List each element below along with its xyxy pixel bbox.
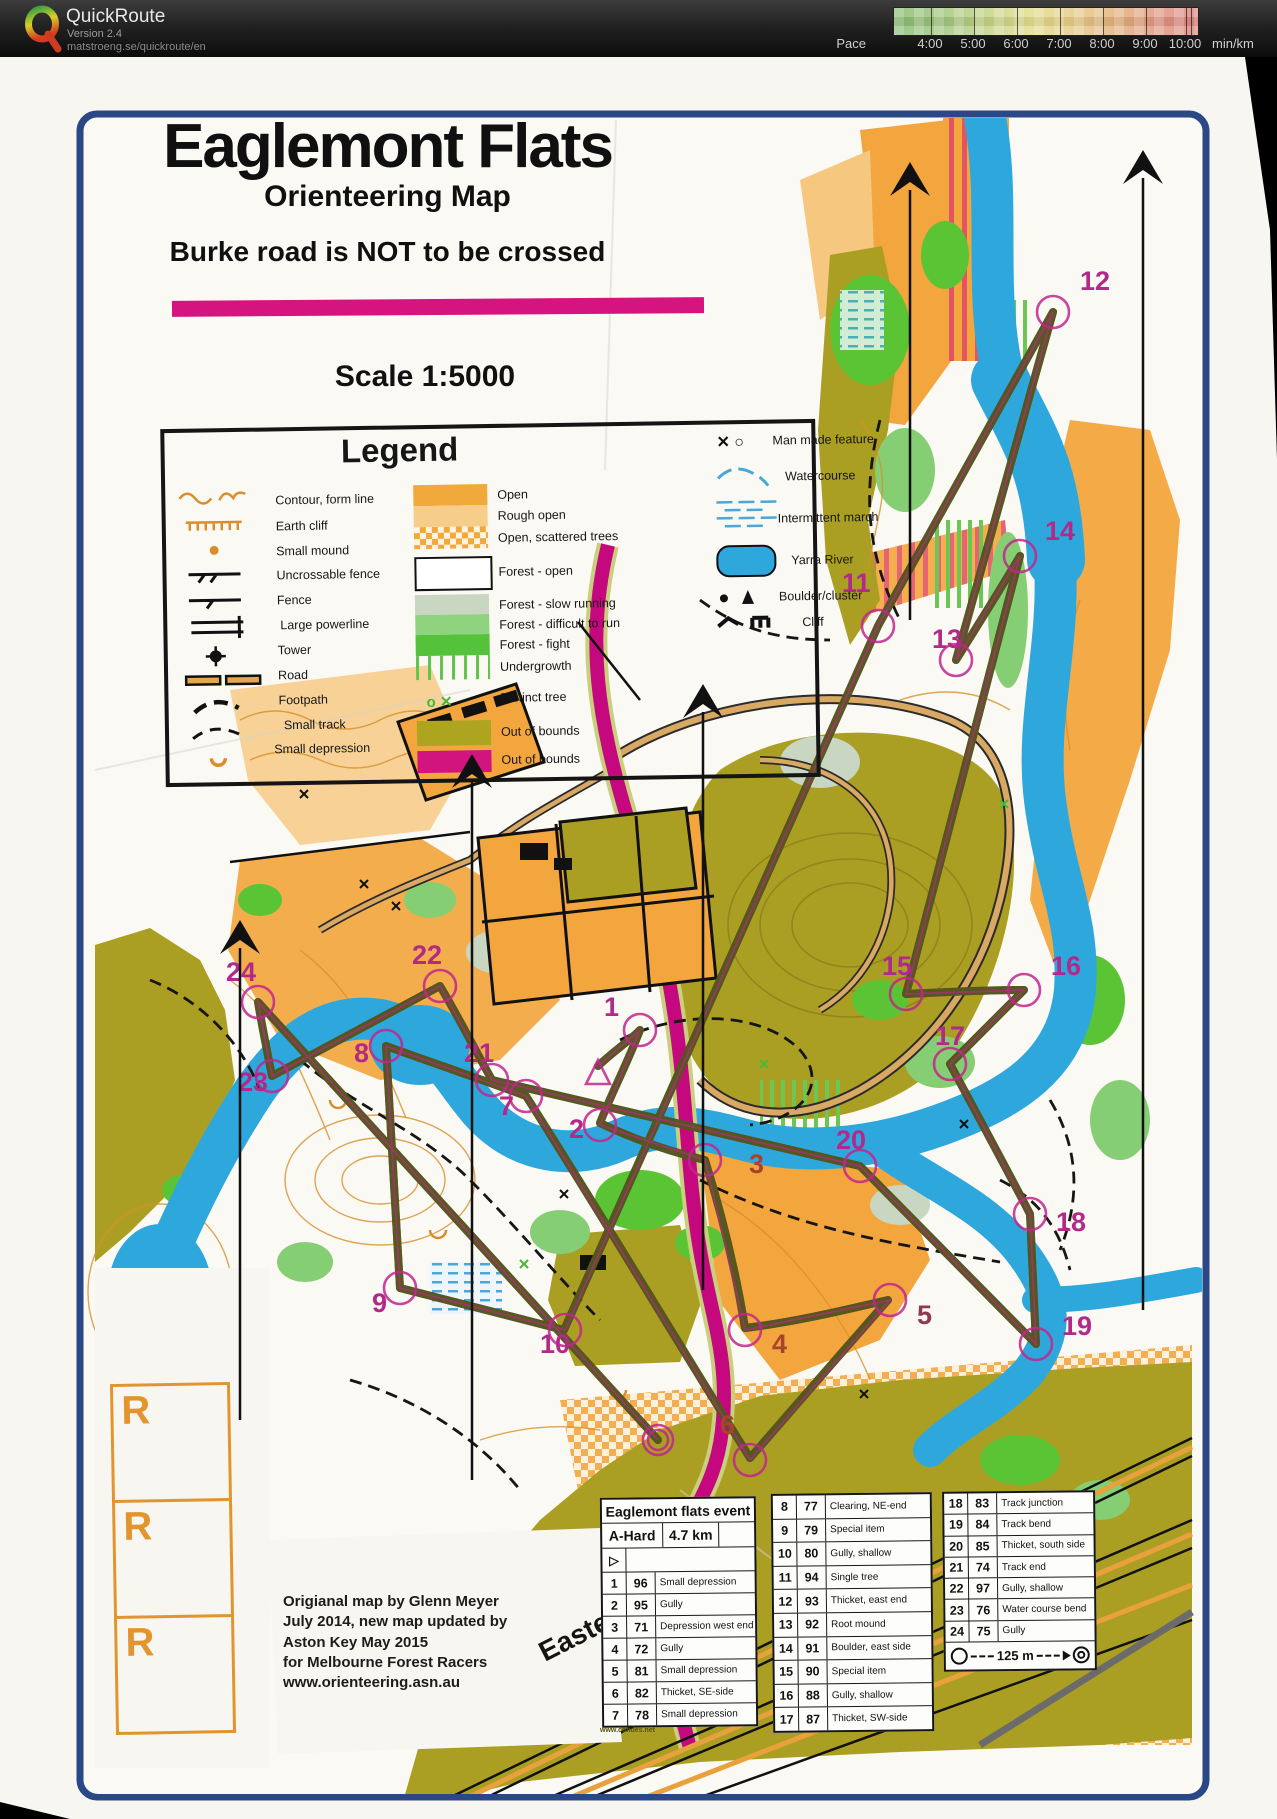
legend-item: Cliff	[802, 615, 824, 629]
legend-item: Out of bounds	[501, 724, 580, 739]
man-made-feature-icon: ✕ ○	[716, 432, 744, 452]
legend-item: Tower	[278, 643, 312, 658]
control-row: 1392Root mound	[774, 1611, 931, 1636]
scale-start-circle	[951, 1648, 968, 1665]
control-row: 581Small depression	[603, 1658, 755, 1682]
control-row: 1688Gully, shallow	[775, 1682, 932, 1707]
pace-tick-label: 8:00	[1080, 36, 1124, 51]
legend-item: Out of bounds	[501, 752, 580, 767]
legend-item: Uncrossable fence	[276, 567, 380, 583]
control-row: 371Depression west end	[603, 1614, 755, 1638]
control-number: 1	[604, 992, 619, 1022]
registration-letter: R	[121, 1388, 151, 1433]
pace-label: Pace	[790, 36, 866, 51]
start-symbol: ▷	[602, 1549, 626, 1572]
map-warning: Burke road is NOT to be crossed	[100, 236, 675, 268]
fence-icon	[189, 600, 241, 609]
pace-tick-label: 9:00	[1123, 36, 1167, 51]
legend-item: Distinct tree	[500, 690, 566, 705]
out-of-bounds-magenta-swatch	[417, 750, 491, 773]
legend-item: Road	[278, 668, 308, 682]
control-number: 21	[464, 1038, 494, 1068]
map-title-block: Eaglemont Flats Orienteering Map Burke r…	[100, 116, 675, 268]
boulder-cluster-icon	[720, 590, 754, 605]
control-descriptions-panel-2: 877Clearing, NE-end 979Special item 1080…	[771, 1492, 934, 1733]
app-title: QuickRoute	[66, 6, 165, 28]
scale-bar-row: 125 m	[946, 1640, 1095, 1670]
scattered-trees-swatch	[414, 526, 488, 549]
control-row: 196Small depression	[603, 1570, 755, 1594]
control-number: 15	[882, 951, 912, 981]
legend-item: Contour, form line	[275, 492, 374, 508]
quickroute-logo-icon	[22, 5, 68, 53]
control-number: 13	[932, 624, 962, 654]
legend-item: Watercourse	[785, 468, 856, 483]
watercourse-icon	[718, 468, 768, 486]
control-row: 1080Gully, shallow	[773, 1540, 930, 1565]
control-number: 23	[238, 1067, 268, 1097]
registration-box: R	[110, 1382, 232, 1503]
contour-icon	[179, 493, 245, 504]
control-number: 5	[917, 1300, 932, 1330]
control-number: 2	[569, 1114, 584, 1144]
control-descriptions-panel-3: 1883Track junction 1984Track bend 2085Th…	[942, 1490, 1097, 1672]
control-number: 4	[772, 1329, 787, 1359]
forest-open-swatch	[414, 556, 493, 591]
control-row: 1984Track bend	[944, 1513, 1093, 1536]
registration-letter: R	[125, 1620, 155, 1665]
control-number: 3	[749, 1149, 764, 1179]
registration-box: R	[112, 1501, 234, 1619]
control-row: 2376Water course bend	[945, 1598, 1094, 1621]
control-number: 10	[540, 1329, 570, 1359]
legend-item: Fence	[277, 593, 312, 608]
app-url: matstroeng.se/quickroute/en	[67, 41, 206, 53]
map-subtitle: Orienteering Map	[100, 180, 675, 214]
credit-line: Aston Key May 2015	[283, 1633, 507, 1653]
out-of-bounds-olive-swatch	[417, 720, 491, 746]
yarra-river-swatch	[717, 546, 775, 577]
credit-line: Origianal map by Glenn Meyer	[283, 1592, 507, 1612]
legend-item: Forest - open	[498, 564, 573, 579]
pace-tick-label: 4:00	[908, 36, 952, 51]
control-row: 1194Single tree	[774, 1564, 931, 1589]
credit-line: for Melbourne Forest Racers	[283, 1653, 507, 1673]
intermittent-marsh-icon	[716, 501, 776, 526]
undergrowth-swatch	[416, 655, 490, 680]
scale-finish-circle	[1073, 1646, 1090, 1663]
control-number: 20	[836, 1125, 866, 1155]
control-row: 979Special item	[773, 1517, 930, 1542]
control-row: 2475Gully	[945, 1619, 1094, 1642]
legend-item: Forest - fight	[500, 637, 570, 652]
small-mound-icon	[210, 546, 219, 555]
control-descriptions-panel-1: Eaglemont flats event A-Hard 4.7 km ▷ 19…	[600, 1496, 758, 1728]
legend-item: Large powerline	[280, 617, 369, 632]
control-row: 2297Gully, shallow	[945, 1576, 1094, 1599]
legend-item: Yarra River	[791, 552, 853, 567]
control-number: 9	[372, 1288, 387, 1318]
legend-item: Undergrowth	[500, 659, 572, 674]
rough-open-swatch	[413, 505, 487, 527]
control-number: 19	[1062, 1311, 1092, 1341]
control-number: 22	[412, 940, 442, 970]
small-depression-icon	[211, 758, 225, 765]
scale-arrow-icon	[1063, 1650, 1071, 1660]
road-icon	[186, 676, 260, 685]
cliff-icon	[718, 618, 768, 629]
control-row: 295Gully	[603, 1592, 755, 1616]
open-swatch	[413, 484, 487, 506]
registration-box: R	[114, 1617, 236, 1735]
control-row: 1293Thicket, east end	[774, 1588, 931, 1613]
control-number: 18	[1056, 1207, 1086, 1237]
forest-difficult-swatch	[415, 614, 489, 635]
app-version: Version 2.4	[67, 28, 122, 40]
legend-item: Earth cliff	[276, 519, 328, 534]
pace-unit: min/km	[1212, 36, 1254, 51]
legend-item: Small mound	[276, 543, 349, 558]
control-row: 1590Special item	[774, 1658, 931, 1683]
control-number: 16	[1051, 951, 1081, 981]
small-track-icon	[193, 729, 239, 739]
earth-cliff-icon	[186, 522, 242, 531]
powerline-icon	[191, 616, 243, 639]
control-number: 7	[499, 1091, 514, 1121]
control-number: 14	[1045, 516, 1075, 546]
event-name: Eaglemont flats event	[602, 1498, 754, 1523]
registration-boxes: R R R	[110, 1382, 236, 1735]
legend-item: Man made feature	[772, 432, 874, 448]
legend-box: Legend Contour, form line Earth cliff Sm…	[160, 419, 821, 787]
credit-line: July 2014, new map updated by	[283, 1612, 507, 1632]
control-row: 778Small depression	[604, 1702, 756, 1726]
control-row: 2174Track end	[945, 1555, 1094, 1578]
control-row: 1883Track junction	[944, 1492, 1093, 1514]
course-class: A-Hard	[602, 1523, 663, 1548]
distinct-tree-icon: o ✕	[426, 693, 452, 711]
control-row: 2085Thicket, south side	[945, 1534, 1094, 1557]
credit-line: www.orienteering.asn.au	[283, 1673, 507, 1693]
map-credits: Origianal map by Glenn Meyer July 2014, …	[283, 1592, 507, 1693]
map-scale: Scale 1:5000	[290, 360, 560, 394]
scale-bar-label: 125 m	[997, 1648, 1034, 1663]
pace-tick-label: 10:00	[1163, 36, 1207, 51]
legend-item: Small depression	[274, 741, 370, 757]
control-number: 12	[1080, 266, 1110, 296]
legend-line-icons	[175, 485, 271, 772]
legend-item: Open	[497, 487, 528, 501]
legend-item: Forest - difficult to run	[499, 616, 620, 632]
control-number: 8	[354, 1038, 369, 1068]
control-number: 6	[720, 1410, 735, 1440]
course-length: 4.7 km	[663, 1523, 719, 1548]
pace-tick-label: 7:00	[1037, 36, 1081, 51]
legend-water-icons	[710, 453, 793, 634]
footpath-icon	[195, 702, 239, 713]
legend-item: Boulder/cluster	[779, 588, 863, 603]
pace-gradient-scale[interactable]	[893, 7, 1199, 36]
app-header: QuickRoute Version 2.4 matstroeng.se/qui…	[0, 0, 1277, 57]
uncrossable-fence-icon	[189, 574, 241, 583]
legend-item: Rough open	[498, 508, 566, 523]
control-row: 1491Boulder, east side	[774, 1635, 931, 1660]
control-row: 1787Thicket, SW-side	[775, 1706, 932, 1731]
control-number: 24	[226, 957, 256, 987]
forest-fight-swatch	[415, 634, 489, 656]
control-row: 877Clearing, NE-end	[773, 1494, 930, 1518]
pace-tick-label: 5:00	[951, 36, 995, 51]
control-number: 17	[935, 1021, 965, 1051]
condes-fine-print: www.condes.net	[600, 1727, 655, 1734]
tower-icon	[206, 646, 226, 666]
legend-item: Open, scattered trees	[498, 529, 618, 545]
legend-title: Legend	[164, 428, 635, 473]
legend-item: Small track	[284, 717, 346, 732]
control-row: 682Thicket, SE-side	[604, 1680, 756, 1704]
control-row: 472Gully	[603, 1636, 755, 1660]
pace-tick-label: 6:00	[994, 36, 1038, 51]
forest-slow-swatch	[415, 594, 489, 615]
legend-item: Footpath	[278, 693, 328, 708]
map-title: Eaglemont Flats	[100, 116, 675, 178]
registration-letter: R	[123, 1504, 153, 1549]
quickroute-window: 1 2 3 4 5 6 7 8 9 10 11 12 13 14 15 16 1	[0, 0, 1277, 1819]
legend-item: Intermittent march	[778, 510, 879, 526]
legend-item: Forest - slow running	[499, 596, 616, 612]
